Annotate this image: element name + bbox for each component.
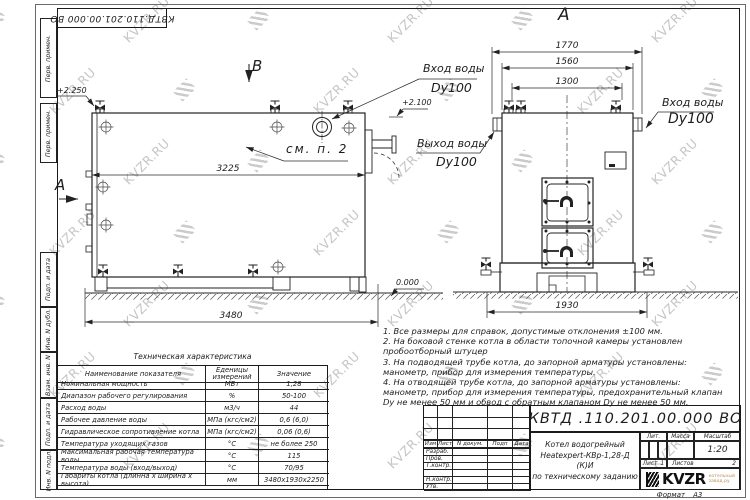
elevation-flange-label: +2.100 (402, 98, 432, 107)
view-marker-a: А (55, 176, 65, 194)
front-view-title: А (558, 5, 570, 25)
spec-cell: 3480х1930х2250 (259, 474, 329, 486)
note-line: манометр, прибор для измерения температу… (383, 387, 743, 397)
signature-role-label: Пров. (424, 456, 453, 463)
signature-cell (453, 449, 488, 456)
water-outlet-dn: Dy100 (436, 154, 477, 169)
sheets-label: Листов (672, 461, 694, 467)
lit-header: Лит. (640, 432, 667, 441)
technical-notes: 1. Все размеры для справок, допустимые о… (383, 326, 743, 408)
rev-header-dokum: N докум. (453, 440, 488, 448)
scale-header: Масштаб (694, 432, 741, 441)
lit-cell-1 (640, 441, 649, 459)
logo-caption-line2: завод.ру (709, 479, 735, 484)
signature-cell (453, 484, 488, 491)
signature-cell (513, 463, 531, 470)
signature-cell (453, 456, 488, 463)
water-inlet-label-side: Вход воды (423, 62, 484, 75)
signature-role-label: Утв. (424, 484, 453, 491)
spec-cell: Максимальная рабочая температура воды (58, 450, 206, 462)
water-inlet-dn-front: Dy100 (668, 111, 714, 127)
spec-cell: Температура воды (вход/выход) (58, 462, 206, 474)
rev-header-list: Лист (438, 440, 453, 448)
side-view-valves (95, 101, 357, 277)
product-name-line2: Heatexpert-КВр-1,28-Д (К)И (531, 451, 639, 472)
water-inlet-label-front: Вход воды (662, 96, 723, 109)
signature-role-label: Разраб. (424, 449, 453, 456)
note-line: манометр, прибор для измерения температу… (383, 367, 743, 377)
spec-cell: 115 (259, 450, 329, 462)
inlet-flange-circle (313, 111, 332, 143)
top-stamp-box: КВТД.110.201.00.000 ВО (57, 8, 167, 28)
format-note: ФорматА3 (618, 491, 741, 499)
spec-cell: 0,06 (0,6) (259, 426, 329, 438)
spec-table: Наименование показателя Еденицы измерени… (57, 365, 328, 490)
spec-cell: °С (206, 438, 259, 450)
mass-cell (667, 441, 694, 459)
spec-cell: °С (206, 450, 259, 462)
section-marker-b: В (252, 57, 262, 75)
see-note-callout: см. п. 2 (286, 142, 348, 156)
dim-shell-length: 3225 (217, 164, 240, 174)
signature-cell (488, 463, 513, 470)
spec-cell: МПа (кгс/см2) (206, 426, 259, 438)
scale-value: 1:20 (694, 441, 741, 459)
document-number-box: КВТД .110.201.00.000 ВО (530, 405, 741, 432)
signature-role-label (424, 470, 453, 477)
kvzr-logo-icon (646, 472, 659, 487)
rev-header-izm: Изм (424, 440, 438, 448)
signature-cell (488, 456, 513, 463)
spec-cell: мм (206, 474, 259, 486)
spec-table-title: Техническая характеристика (57, 352, 328, 361)
spec-cell: Габариты котла (длинна х ширина х высота… (58, 474, 206, 486)
signature-cell (453, 477, 488, 484)
revision-grid (423, 405, 530, 440)
spec-cell: Температура уходящих газов (58, 438, 206, 450)
dim-total-length: 3480 (220, 311, 243, 321)
top-stamp-number: КВТД.110.201.00.000 ВО (50, 13, 174, 23)
signature-cell (488, 477, 513, 484)
dim-nozzle-spacing: 1300 (556, 77, 579, 87)
spec-cell: % (206, 390, 259, 402)
signature-cell (513, 484, 531, 491)
revision-cell (453, 418, 488, 430)
spec-cell: Расход воды (58, 402, 206, 414)
dim-body-width: 1560 (556, 57, 579, 67)
spec-cell: Рабочее давление воды (58, 414, 206, 426)
signature-cell (513, 449, 531, 456)
sheet-cell: Лист 1 (640, 459, 667, 468)
revision-cell (488, 406, 513, 418)
boiler-side-view (86, 109, 399, 292)
signature-role-label: Т.контр. (424, 463, 453, 470)
revision-cell (424, 406, 438, 418)
mass-header: Масса (667, 432, 694, 441)
signature-cell (513, 456, 531, 463)
spec-cell: 70/95 (259, 462, 329, 474)
revision-cell (424, 418, 438, 430)
boiler-front-view (481, 95, 654, 292)
note-line: 1. Все размеры для справок, допустимые о… (383, 326, 743, 336)
revision-cell (488, 418, 513, 430)
signature-cell (453, 463, 488, 470)
product-name-line1: Котел водогрейный (531, 440, 639, 451)
dim-overall-width: 1770 (556, 41, 579, 51)
revision-cell (438, 406, 453, 418)
signature-cell (488, 484, 513, 491)
signature-cell (513, 470, 531, 477)
sheets-cell: Листов 2 (667, 459, 741, 468)
spec-cell: не более 250 (259, 438, 329, 450)
dim-base-width: 1930 (556, 301, 579, 311)
lit-cell-2 (649, 441, 658, 459)
spec-cell: МВт (206, 378, 259, 390)
logo-caption: котельный завод.ру (709, 474, 735, 484)
signature-cell (453, 470, 488, 477)
drawing-sheet: KVZR.RUKVZR.RUKVZR.RUKVZR.RUKVZR.RUKVZR.… (0, 0, 750, 500)
spec-cell: 44 (259, 402, 329, 414)
rev-header-podp: Подп (488, 440, 513, 448)
sheet-value: 1 (661, 461, 665, 467)
format-value: А3 (693, 491, 702, 499)
product-name-line3: по техническому заданию (531, 472, 639, 483)
organization-cell: KVZR котельный завод.ру (640, 468, 741, 490)
signature-cell (488, 449, 513, 456)
sheets-value: 2 (732, 461, 736, 467)
revision-cell (438, 418, 453, 430)
elevation-top-label: +2.250 (57, 86, 87, 95)
sheet-label: Лист (643, 461, 658, 467)
signature-role-label: Н.контр. (424, 477, 453, 484)
note-line: 4. На отводящей трубе котла, до запорной… (383, 377, 743, 387)
product-name-box: Котел водогрейный Heatexpert-КВр-1,28-Д … (530, 432, 640, 490)
revision-cell (453, 406, 488, 418)
note-line: 2. На боковой стенке котла в области топ… (383, 336, 743, 346)
spec-cell: МПа (кгс/см2) (206, 414, 259, 426)
spec-cell: °С (206, 462, 259, 474)
spec-cell: Гидравлическое сопротивление котла (58, 426, 206, 438)
spec-cell: м3/ч (206, 402, 259, 414)
rev-header-data: Дата (513, 440, 531, 448)
water-inlet-dn-side: Dy100 (431, 80, 472, 95)
spec-cell: Номинальная мощность (58, 378, 206, 390)
spec-cell: 50-100 (259, 390, 329, 402)
spec-cell: 0,6 (6,0) (259, 414, 329, 426)
signature-grid: Разраб.Пров.Т.контр.Н.контр.Утв. (423, 448, 530, 490)
signature-cell (513, 477, 531, 484)
water-outlet-label: Выход воды (417, 137, 487, 150)
spec-cell: Диапазон рабочего регулирования (58, 390, 206, 402)
kvzr-logo-text: KVZR (662, 470, 706, 488)
format-label: Формат (657, 491, 685, 499)
elevation-zero-label: 0.000 (396, 278, 419, 287)
lit-cell-3 (658, 441, 667, 459)
spec-cell: 1,28 (259, 378, 329, 390)
upper-furnace-door (542, 178, 593, 226)
signature-cell (488, 470, 513, 477)
outlet-elbow (365, 130, 399, 178)
lower-furnace-door (542, 228, 593, 268)
note-line: пробоотборный штуцер (383, 346, 743, 356)
note-line: 3. На подводящей трубе котла, до запорно… (383, 357, 743, 367)
revision-headers: Изм Лист N докум. Подп Дата (423, 440, 530, 448)
